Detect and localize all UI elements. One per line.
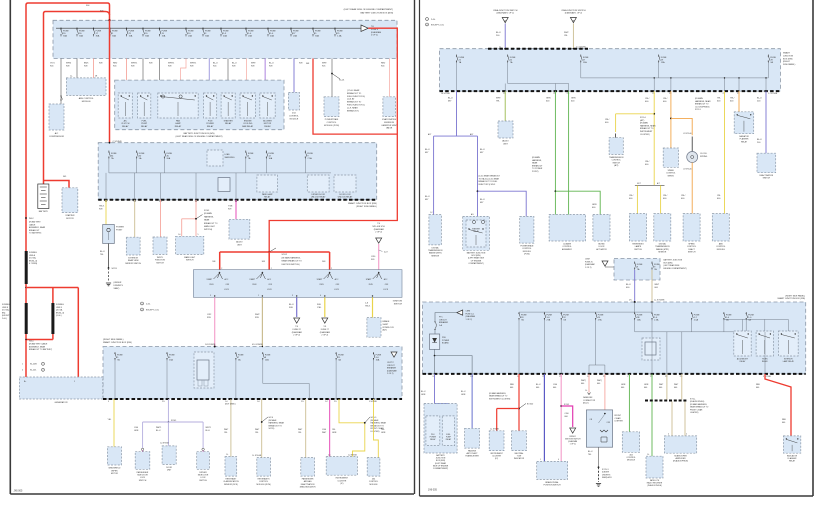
svg-text:DRIVER'S: DRIVER'S: [602, 474, 611, 476]
svg-text:CIGAR: CIGAR: [615, 417, 622, 420]
svg-text:2%: 2%: [334, 401, 337, 403]
svg-text:1-L S/Y0-6B: 1-L S/Y0-6B: [252, 455, 262, 457]
svg-text:PSU: PSU: [442, 337, 447, 339]
svg-text:RELAY: RELAY: [225, 122, 232, 125]
svg-text:BLEND: BLEND: [598, 244, 605, 246]
svg-text:(RIGHT: (RIGHT: [783, 61, 791, 63]
svg-text:(A/T): (A/T): [614, 164, 619, 167]
svg-text:NEAR BREAKOUT TO: NEAR BREAKOUT TO: [282, 260, 303, 263]
svg-text:1-0: 1-0: [257, 401, 260, 403]
svg-text:DIGITAL: DIGITAL: [432, 246, 439, 249]
svg-text:SWITCH): SWITCH): [204, 229, 212, 231]
svg-text:15A: 15A: [583, 61, 587, 64]
svg-text:BOARD: BOARD: [442, 342, 449, 345]
svg-text:(IC): (IC): [495, 458, 499, 460]
svg-text:40A: 40A: [270, 35, 274, 38]
svg-text:RED: RED: [782, 419, 787, 421]
svg-text:WIPER: WIPER: [111, 470, 118, 472]
svg-text:1-L: 1-L: [647, 454, 650, 456]
svg-text:GRN: GRN: [644, 384, 649, 386]
svg-text:600: 600: [644, 387, 647, 389]
svg-text:A/C: A/C: [55, 132, 59, 135]
svg-text:(RIGHT SIDE PANEL): (RIGHT SIDE PANEL): [103, 338, 124, 341]
svg-text:LINK B: LINK B: [2, 307, 9, 309]
svg-text:BATTERY: BATTERY: [436, 454, 445, 457]
svg-text:UNLOCK RELAY: UNLOCK RELAY: [311, 196, 326, 199]
svg-text:CIRCUIT: CIRCUIT: [439, 319, 448, 321]
svg-text:SWITCH: SWITCH: [634, 249, 642, 251]
svg-text:(IN BATTERY: (IN BATTERY: [29, 221, 41, 224]
svg-text:PCM: PCM: [208, 121, 213, 123]
svg-text:BL-U: BL-U: [536, 384, 541, 386]
svg-text:1 OF 2): 1 OF 2): [570, 444, 576, 446]
svg-text:2%: 2%: [629, 300, 632, 302]
svg-text:RED: RED: [381, 63, 386, 65]
svg-text:2%: 2%: [723, 93, 726, 95]
svg-text:WHT/1: WHT/1: [131, 63, 138, 65]
svg-text:W/S/TL: W/S/TL: [157, 257, 163, 259]
svg-text:RELAY: RELAY: [122, 125, 129, 128]
svg-text:RELAY: RELAY: [264, 196, 271, 199]
svg-text:YEL/: YEL/: [663, 98, 668, 100]
svg-text:600: 600: [756, 387, 759, 389]
svg-text:BRAKE PEDAL: BRAKE PEDAL: [545, 481, 558, 484]
svg-text:(IN MAIN: (IN MAIN: [269, 419, 277, 422]
svg-text:20A: 20A: [167, 157, 171, 160]
svg-text:RESTRAINTS: RESTRAINTS: [258, 478, 271, 481]
svg-text:LIGHTER: LIGHTER: [615, 421, 624, 423]
svg-text:POWER: POWER: [116, 227, 124, 229]
svg-text:(A/T): (A/T): [383, 329, 388, 332]
svg-text:FAN RELAY: FAN RELAY: [242, 125, 254, 128]
svg-text:CLASSIFICATION: CLASSIFICATION: [223, 480, 239, 483]
svg-text:S/Y05): S/Y05): [269, 428, 275, 430]
svg-text:ASSEMBLY, NEAR: ASSEMBLY, NEAR: [29, 226, 46, 229]
svg-text:RELAY: RELAY: [741, 140, 748, 143]
svg-text:600: 600: [581, 383, 584, 385]
svg-text:(PCM): (PCM): [524, 254, 530, 256]
svg-text:GRN: GRN: [592, 204, 597, 206]
svg-text:INSTRUMENT: INSTRUMENT: [336, 478, 349, 480]
svg-text:BL-U: BL-U: [421, 391, 426, 393]
svg-text:BN): BN): [2, 312, 6, 314]
svg-text:SMART JUNCTION BOX (R/B): SMART JUNCTION BOX (R/B): [103, 341, 132, 344]
svg-text:MODULE (RCM): MODULE (RCM): [257, 484, 272, 486]
svg-text:BATTERY JUNCTION BOX (B/N): BATTERY JUNCTION BOX (B/N): [361, 11, 394, 14]
svg-text:RANGE (MTR): RANGE (MTR): [656, 248, 669, 251]
svg-text:1: 1: [74, 381, 75, 383]
svg-text:YEL: YEL: [298, 432, 302, 434]
svg-text:LOCK: LOCK: [383, 289, 389, 291]
svg-text:2 OF 2): 2 OF 2): [371, 35, 378, 37]
svg-text:1: 1: [142, 303, 143, 305]
svg-text:START: START: [317, 278, 324, 281]
svg-text:LIGHTER): LIGHTER): [690, 412, 699, 414]
svg-text:MODULE: MODULE: [523, 251, 532, 253]
svg-text:LOCK: LOCK: [224, 289, 230, 291]
svg-text:C8HA JUNCTION SWITCH: C8HA JUNCTION SWITCH: [561, 9, 586, 12]
svg-text:COMPARTMENT): COMPARTMENT): [433, 467, 449, 470]
svg-text:BREAKOUT TO: BREAKOUT TO: [640, 127, 654, 130]
svg-text:BREAKER: BREAKER: [439, 321, 449, 324]
svg-text:BATTERY: BATTERY: [39, 210, 49, 213]
svg-text:600: 600: [553, 387, 556, 389]
svg-text:2%: 2%: [652, 93, 655, 95]
svg-text:BN BL-U): BN BL-U): [29, 260, 37, 262]
svg-text:SWITCH: SWITCH: [688, 252, 696, 254]
svg-text:YEL/: YEL/: [681, 195, 686, 197]
svg-text:RELAY: RELAY: [207, 125, 214, 128]
svg-text:W4-2: W4-2: [29, 218, 34, 220]
svg-text:1 OF 2): 1 OF 2): [466, 319, 473, 321]
svg-text:POINT: POINT: [116, 230, 123, 232]
svg-text:SMART: SMART: [783, 52, 791, 55]
svg-text:GRN: GRN: [621, 384, 626, 386]
svg-text:(DIAGRAM: (DIAGRAM: [585, 263, 595, 266]
svg-text:RED: RED: [113, 63, 118, 65]
svg-text:2%: 2%: [650, 376, 653, 378]
svg-text:YEL: YEL: [224, 432, 228, 434]
svg-text:GRN: GRN: [134, 430, 139, 432]
svg-text:WHT/1: WHT/1: [168, 63, 175, 65]
svg-text:15A: 15A: [129, 35, 133, 38]
svg-text:7: 7: [627, 376, 628, 378]
svg-text:REAR VIEW: REAR VIEW: [128, 259, 139, 262]
svg-text:2%: 2%: [553, 93, 556, 95]
svg-text:HARNESS, NEAR: HARNESS, NEAR: [640, 124, 656, 127]
svg-text:EXCEPT 2-GL: EXCEPT 2-GL: [431, 24, 445, 26]
svg-text:HARNESS, NEAR: HARNESS, NEAR: [269, 422, 285, 425]
svg-text:YEL/: YEL/: [605, 119, 610, 121]
svg-text:TRANSMISSION: TRANSMISSION: [655, 245, 670, 248]
svg-text:(2-GL): (2-GL): [56, 315, 62, 317]
svg-text:NEUTRAL: NEUTRAL: [515, 452, 524, 455]
svg-text:JUNCTION: JUNCTION: [783, 55, 794, 57]
svg-text:EXTERIOR: EXTERIOR: [128, 258, 138, 260]
svg-text:LOCK: LOCK: [200, 477, 206, 479]
svg-text:WHT: WHT: [564, 32, 569, 34]
svg-text:ANTI-THEFT: ANTI-THEFT: [466, 452, 478, 455]
svg-text:(BL-K): (BL-K): [583, 403, 589, 405]
svg-text:20A: 20A: [188, 35, 192, 38]
svg-text:TO BATTERY): TO BATTERY): [29, 232, 42, 235]
svg-text:WHT): WHT): [66, 63, 72, 65]
svg-text:4: 4: [668, 434, 669, 436]
svg-text:CONNECTOR: CONNECTOR: [583, 400, 596, 402]
svg-text:BL-U: BL-U: [100, 251, 105, 253]
svg-text:CONTROL: CONTROL: [522, 248, 531, 250]
svg-text:2 OF 2): 2 OF 2): [321, 335, 328, 337]
svg-text:(IN MAIN HARNESS,: (IN MAIN HARNESS,: [282, 256, 301, 259]
svg-text:HARNESS,: HARNESS,: [532, 159, 542, 162]
svg-text:BRAKE: BRAKE: [383, 320, 390, 323]
svg-text:DOOR: DOOR: [599, 246, 605, 248]
svg-text:2%: 2%: [301, 401, 304, 403]
svg-text:WHT: WHT: [655, 284, 660, 286]
svg-text:BL-U: BL-U: [480, 149, 485, 151]
svg-text:BL-U: BL-U: [289, 304, 294, 306]
svg-text:SMART JUNCTION BOX (R/B): SMART JUNCTION BOX (R/B): [777, 297, 805, 300]
svg-text:2%: 2%: [665, 376, 668, 378]
svg-text:(A/T): (A/T): [640, 119, 645, 122]
svg-text:600: 600: [659, 387, 662, 389]
svg-text:MAIN LIGHT: MAIN LIGHT: [184, 256, 196, 259]
svg-text:PASSIVE: PASSIVE: [468, 450, 477, 453]
svg-text:TO EA-GL) (2-GL NEAR: TO EA-GL) (2-GL NEAR: [479, 177, 500, 180]
svg-text:LAMP RELAY: LAMP RELAY: [783, 360, 795, 363]
svg-text:CLIMATE: CLIMATE: [563, 243, 572, 246]
svg-text:(UNDER: (UNDER: [602, 472, 610, 474]
svg-text:SWITCH: SWITCH: [186, 260, 194, 262]
svg-text:MODULE: MODULE: [717, 249, 726, 251]
svg-text:30A: 30A: [205, 35, 209, 38]
svg-text:(IN MAIN HARNESS,: (IN MAIN HARNESS,: [690, 403, 708, 406]
svg-text:7.5A: 7.5A: [307, 157, 312, 160]
svg-text:908: 908: [262, 261, 265, 263]
svg-text:S1-D2B: S1-D2B: [30, 364, 37, 366]
svg-text:IGNITION SWITCH): IGNITION SWITCH): [282, 264, 300, 266]
svg-text:GRN: GRN: [332, 432, 337, 434]
svg-text:LAMPS: LAMPS: [635, 245, 642, 248]
svg-text:BL-U: BL-U: [757, 98, 762, 100]
svg-text:2 OF 2): 2 OF 2): [387, 373, 394, 375]
svg-text:LINK A: LINK A: [29, 254, 36, 257]
svg-text:AUDIO: AUDIO: [236, 241, 243, 244]
svg-text:UNLOCK RELAY: UNLOCK RELAY: [338, 196, 353, 199]
svg-text:(UNDER: (UNDER: [114, 282, 122, 284]
svg-text:BL-U: BL-U: [757, 139, 762, 141]
svg-text:(LEFT REAR SIDE: (LEFT REAR SIDE: [468, 257, 485, 260]
svg-text:LOCK: LOCK: [267, 289, 273, 291]
svg-text:30A: 30A: [112, 35, 116, 38]
svg-text:BL-U: BL-U: [448, 98, 453, 100]
svg-text:2: 2: [686, 434, 687, 436]
svg-text:BREAKOUT TO: BREAKOUT TO: [269, 424, 283, 427]
svg-text:16 S/Y03B: 16 S/Y03B: [441, 93, 450, 95]
svg-text:YEL: YEL: [332, 429, 336, 431]
svg-text:BL-U: BL-U: [425, 149, 430, 151]
svg-text:1-0 S/Y05B: 1-0 S/Y05B: [348, 454, 358, 456]
svg-text:(DIAGRAM 1 OF 2): (DIAGRAM 1 OF 2): [497, 12, 515, 15]
svg-text:(DIAGRAM: (DIAGRAM: [371, 31, 381, 34]
svg-text:(LEFT REAR SIDE OF ENGINE COMP: (LEFT REAR SIDE OF ENGINE COMPARTMENT): [176, 135, 223, 138]
svg-text:(RIGHT SIDE PANEL): (RIGHT SIDE PANEL): [785, 294, 805, 297]
svg-text:STARTER: STARTER: [224, 120, 234, 123]
svg-text:1: 1: [258, 295, 259, 297]
svg-text:MODULE: MODULE: [290, 118, 299, 120]
svg-text:(20 GA,: (20 GA,: [56, 309, 63, 312]
svg-text:(17-GL NEAR: (17-GL NEAR: [347, 89, 360, 92]
svg-text:COMPRESSOR: COMPRESSOR: [49, 136, 65, 138]
svg-text:600: 600: [536, 387, 539, 389]
svg-text:LIGHTER): LIGHTER): [371, 431, 380, 433]
svg-text:RUN: RUN: [320, 284, 325, 286]
svg-text:BREAKOUT: BREAKOUT: [29, 229, 40, 232]
svg-text:BREAKOUT TO: BREAKOUT TO: [695, 103, 709, 106]
svg-text:DEACTIVATION: DEACTIVATION: [301, 483, 315, 486]
svg-text:15A: 15A: [162, 35, 166, 38]
svg-text:MOTOR: MOTOR: [66, 218, 74, 220]
svg-text:SWITCH: SWITCH: [199, 480, 207, 482]
svg-text:ASSEMBLY, NEAR: ASSEMBLY, NEAR: [29, 345, 46, 348]
svg-text:C8/M: C8/M: [585, 259, 590, 261]
svg-text:AIR BAG: AIR BAG: [304, 480, 312, 483]
svg-text:4.7 WFN): 4.7 WFN): [29, 263, 37, 265]
svg-text:REVERSING: REVERSING: [632, 244, 644, 246]
svg-text:10A: 10A: [269, 157, 273, 160]
svg-text:5: 5: [210, 295, 211, 297]
svg-text:(DIAGRAM: (DIAGRAM: [292, 331, 302, 334]
svg-text:5 S/Y03B: 5 S/Y03B: [763, 376, 771, 378]
svg-text:SEAT) A/S3: SEAT) A/S3: [602, 476, 611, 479]
svg-text:ENGINE: ENGINE: [244, 121, 252, 123]
svg-text:LOAD: LOAD: [225, 153, 231, 156]
svg-text:BL-U: BL-U: [269, 63, 274, 65]
svg-text:HARNESS,: HARNESS,: [204, 215, 214, 218]
svg-text:INJECTOR 5) W3-3: INJECTOR 5) W3-3: [479, 184, 496, 186]
svg-text:2 OF 2): 2 OF 2): [375, 232, 382, 234]
svg-text:PARK LAMP: PARK LAMP: [262, 193, 273, 196]
svg-text:UNIT: UNIT: [503, 143, 508, 145]
svg-text:30A: 30A: [315, 35, 319, 38]
svg-text:30A: 30A: [63, 35, 67, 38]
svg-text:C/00: C/00: [553, 384, 557, 386]
svg-text:600: 600: [597, 383, 600, 385]
svg-text:HARNESS, NEAR: HARNESS, NEAR: [695, 100, 711, 103]
svg-text:1-7 S/Y03B: 1-7 S/Y03B: [768, 93, 778, 95]
svg-text:RELAY: RELAY: [473, 230, 479, 233]
svg-text:FLASHER: FLASHER: [740, 138, 749, 141]
svg-text:A37: A37: [470, 133, 473, 136]
svg-text:1-L S/Y03VB: 1-L S/Y03VB: [654, 300, 665, 302]
svg-text:CLOCKSPRING): CLOCKSPRING): [695, 106, 710, 108]
svg-text:2: 2: [142, 309, 143, 311]
svg-text:NEAR BREAKOUT TO: NEAR BREAKOUT TO: [690, 406, 709, 409]
svg-text:HARNESS, NEAR: HARNESS, NEAR: [371, 422, 387, 425]
svg-text:CLUTCH: CLUTCH: [121, 123, 130, 125]
svg-text:S1-D2L: S1-D2L: [30, 370, 36, 372]
svg-text:BL-U: BL-U: [626, 284, 631, 286]
svg-text:FUEL INJECTOR 1): FUEL INJECTOR 1): [347, 105, 365, 107]
svg-text:WHT: WHT: [322, 63, 327, 65]
svg-text:POINT): POINT): [532, 171, 539, 173]
svg-text:POWERTRAIN: POWERTRAIN: [520, 245, 533, 248]
svg-text:AMPLIFIER: AMPLIFIER: [676, 457, 687, 460]
svg-text:BREAKOUT TO: BREAKOUT TO: [371, 424, 385, 427]
svg-text:SPRING: SPRING: [700, 156, 708, 158]
svg-text:STARTER: STARTER: [65, 214, 75, 217]
svg-text:908: 908: [306, 63, 309, 65]
svg-text:SHEDDING: SHEDDING: [225, 157, 236, 159]
svg-text:POWER: POWER: [206, 123, 214, 125]
svg-text:MODULE: MODULE: [369, 484, 378, 486]
svg-text:FAN: FAN: [176, 120, 180, 123]
svg-text:GRN: GRN: [571, 98, 576, 100]
svg-text:(DIAGRAM: (DIAGRAM: [387, 369, 397, 372]
svg-text:600: 600: [782, 422, 785, 424]
svg-text:908: 908: [322, 261, 325, 263]
svg-text:4: 4: [22, 370, 23, 372]
svg-text:2.5A: 2.5A: [694, 318, 699, 321]
svg-text:2%: 2%: [567, 93, 570, 95]
svg-text:L1 S/Y5-06: L1 S/Y5-06: [683, 133, 692, 135]
svg-text:WINDSHIELD: WINDSHIELD: [108, 468, 121, 470]
svg-text:2%: 2%: [162, 401, 165, 403]
svg-text:(IN MAIN: (IN MAIN: [695, 97, 703, 100]
svg-text:POSITION SWITCH: POSITION SWITCH: [543, 485, 561, 487]
svg-text:BL-U: BL-U: [156, 430, 161, 432]
svg-text:CONTROL: CONTROL: [327, 122, 338, 124]
svg-text:TRANSMISSION: TRANSMISSION: [609, 156, 624, 159]
svg-text:FUEL: FUEL: [142, 121, 148, 123]
svg-text:(IC): (IC): [340, 483, 344, 485]
svg-text:ACTUATOR: ACTUATOR: [596, 248, 607, 251]
svg-text:SIDE DOOR: SIDE DOOR: [198, 475, 209, 477]
svg-text:4: 4: [320, 295, 321, 297]
svg-text:(IN MAIN HARNESS,: (IN MAIN HARNESS,: [489, 392, 507, 395]
svg-text:GRN: GRN: [461, 394, 466, 396]
svg-text:ENGINE COMPARTMENT): ENGINE COMPARTMENT): [664, 267, 687, 270]
svg-text:1-L S/Y03B: 1-L S/Y03B: [490, 429, 499, 431]
svg-text:BN BL-U): BN BL-U): [56, 312, 64, 314]
svg-text:FUSE 27: FUSE 27: [321, 329, 330, 331]
svg-text:POWER: POWER: [442, 340, 450, 342]
svg-text:1 OF 2): 1 OF 2): [585, 267, 592, 269]
svg-text:RELAY: RELAY: [175, 125, 182, 128]
svg-text:CONTROL: CONTROL: [612, 160, 621, 162]
svg-text:GRN: GRN: [381, 432, 386, 434]
svg-text:BL-U: BL-U: [480, 199, 485, 201]
svg-text:FLASHER: FLASHER: [788, 457, 797, 460]
svg-text:CLUSTER): CLUSTER): [640, 134, 650, 136]
svg-text:BL-U: BL-U: [425, 196, 430, 198]
svg-text:ASSEMBLY: ASSEMBLY: [562, 248, 573, 251]
svg-text:CLUSTER: CLUSTER: [337, 480, 346, 482]
svg-text:EVAPORATIVE: EVAPORATIVE: [382, 118, 396, 121]
svg-text:2.5A: 2.5A: [654, 318, 659, 321]
svg-text:(1-0L AT: (1-0L AT: [347, 98, 355, 101]
svg-text:2: 2: [427, 24, 428, 26]
svg-text:(IN AUDIOPHILE): (IN AUDIOPHILE): [647, 484, 662, 487]
svg-text:S/Y02: S/Y02: [282, 254, 288, 256]
svg-text:AUDIO: AUDIO: [502, 140, 509, 143]
svg-text:SWITCH: SWITCH: [394, 304, 403, 306]
svg-text:BREAKER: BREAKER: [387, 367, 397, 370]
svg-text:S/Y2-L3: S/Y2-L3: [602, 469, 609, 471]
svg-text:RELAY: RELAY: [740, 360, 747, 363]
svg-text:27A: 27A: [598, 318, 602, 321]
svg-text:SHIFT: SHIFT: [383, 324, 390, 326]
svg-text:NPL-0/B S/Y0: NPL-0/B S/Y0: [372, 226, 385, 228]
svg-text:SWITCH: SWITCH: [156, 262, 164, 264]
svg-text:TO POWER: TO POWER: [532, 168, 543, 170]
svg-text:(DIAGRAM: (DIAGRAM: [320, 331, 330, 334]
svg-text:DRIVER: DRIVER: [199, 472, 207, 474]
svg-text:EMISSION: EMISSION: [384, 122, 394, 124]
svg-text:YEL/: YEL/: [663, 195, 668, 197]
svg-text:ABS CONTROL: ABS CONTROL: [79, 97, 95, 100]
svg-text:1-0 S/Y05B: 1-0 S/Y05B: [160, 443, 170, 445]
svg-text:(IN MAIN: (IN MAIN: [204, 212, 212, 215]
svg-text:RADIATOR: RADIATOR: [739, 135, 749, 138]
svg-text:YEL: YEL: [255, 432, 259, 434]
svg-text:RELAY: RELAY: [446, 438, 452, 441]
svg-text:1: 1: [43, 364, 44, 366]
svg-text:DEACTIVATION: DEACTIVATION: [759, 174, 773, 177]
svg-text:RUN: RUN: [369, 284, 374, 286]
svg-text:MOTOR: MOTOR: [111, 473, 119, 475]
svg-text:MODULE: MODULE: [82, 101, 92, 103]
